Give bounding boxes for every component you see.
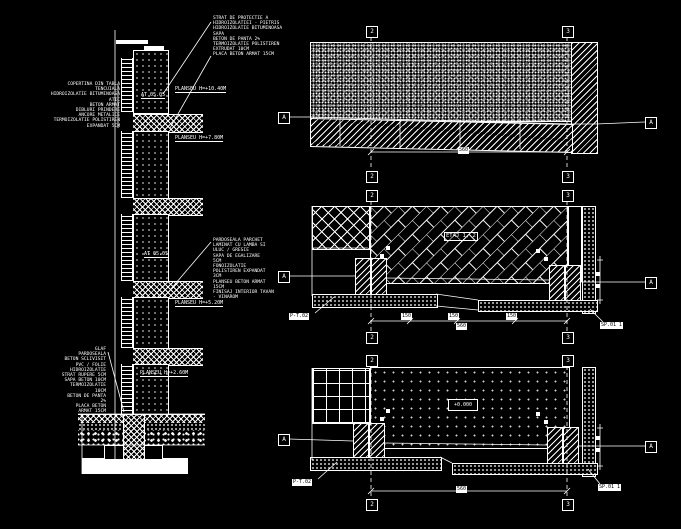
- insulation-band: [452, 463, 598, 475]
- grid-marker-2: 2: [366, 499, 378, 511]
- section-marker-a: A: [278, 434, 290, 446]
- coping-cap: [116, 40, 148, 44]
- ground-notes: GLAF PARDOSEALA BETON SCLIVISIT PVC / FO…: [0, 347, 106, 415]
- wall-insulation: [121, 297, 133, 348]
- grid-marker-2: 2: [366, 332, 378, 344]
- detail-marker: [544, 420, 548, 424]
- detail-marker: [544, 257, 548, 261]
- plan-edge-insulation: [582, 367, 596, 477]
- detail-ref-label: P-T.02: [289, 313, 309, 320]
- detail-marker: [380, 417, 384, 421]
- level-marker: +0.000: [448, 399, 478, 411]
- grid-marker-2: 2: [366, 190, 378, 202]
- wall-ref-label: AT 05.05: [144, 251, 168, 258]
- grid-marker-2: 2: [366, 171, 378, 183]
- insulation-band: [478, 300, 598, 312]
- section-marker-a: A: [645, 441, 657, 453]
- plan-edge-insulation: [582, 206, 596, 314]
- level-label: PLANSEU H=+2.60M: [140, 370, 188, 377]
- section-marker-a: A: [645, 277, 657, 289]
- detail-marker: [536, 249, 540, 253]
- pier-hatch: [565, 265, 581, 303]
- wall-insulation: [121, 364, 133, 415]
- level-label: PLANSEU H=+7.80M: [175, 135, 223, 142]
- tile-grid-field: [312, 368, 370, 424]
- detail-marker: [596, 272, 600, 276]
- insulation-band: [312, 294, 438, 308]
- grid-marker-2: 2: [366, 355, 378, 367]
- roof-edge-hatch: [571, 42, 598, 154]
- detail-ref-label: P-T.02: [292, 479, 312, 486]
- plan-title: ETAJ 1, 2: [444, 232, 478, 241]
- cad-canvas: COPERTINA DIN TABLA TENCUIALA HIDROIZOLA…: [0, 0, 681, 529]
- dimension-value: 150: [448, 313, 459, 320]
- wall-segment: [133, 297, 169, 350]
- insulation-band: [310, 457, 442, 471]
- grid-marker-3: 3: [562, 190, 574, 202]
- detail-ref-label: SP.01 1: [598, 484, 621, 491]
- wall-segment: [133, 214, 169, 283]
- wall-segment: [133, 131, 169, 200]
- grid-marker-3: 3: [562, 171, 574, 183]
- parapet-insulation: [121, 58, 133, 112]
- grid-marker-3: 3: [562, 26, 574, 38]
- grid-marker-3: 3: [562, 499, 574, 511]
- floor-notes: PARDOSEALA PARCHET LAMINAT CU LAMBA SI U…: [213, 238, 313, 300]
- detail-marker: [596, 448, 600, 452]
- dimension-total: 560: [456, 486, 467, 493]
- detail-marker: [386, 246, 390, 250]
- level-label: PLANSEU H=+5.20M: [175, 300, 223, 307]
- pier-hatch: [549, 265, 565, 303]
- detail-marker: [596, 436, 600, 440]
- grid-marker-2: 2: [366, 26, 378, 38]
- balcony-tile-hatch: [312, 206, 370, 250]
- pier-hatch: [371, 258, 387, 297]
- dimension-value: 150: [506, 313, 517, 320]
- foundation-block: [143, 445, 163, 460]
- parquet-herringbone: [370, 206, 568, 284]
- roof-notes: STRAT DE PROTECTIE A HIDROIZOLATIEI - PI…: [213, 16, 325, 58]
- wall-insulation: [121, 131, 133, 198]
- dimension-total: 560: [456, 323, 467, 330]
- pier-hatch: [563, 427, 579, 465]
- dimension-value: 150: [401, 313, 412, 320]
- grid-marker-3: 3: [562, 332, 574, 344]
- roof-gravel-field: [310, 42, 573, 122]
- detail-marker: [536, 412, 540, 416]
- detail-marker: [596, 284, 600, 288]
- section-marker-a: A: [645, 117, 657, 129]
- pier-hatch: [547, 427, 563, 465]
- wall-ref-label: AT 05.05: [141, 92, 165, 99]
- dimension-value: 560: [458, 147, 469, 154]
- roof-slope-hatch: [310, 118, 573, 153]
- wall-insulation: [121, 214, 133, 281]
- parapet-wall: [133, 50, 169, 114]
- section-marker-a: A: [278, 271, 290, 283]
- level-label: PLANSEU H=+10.40M: [175, 86, 226, 93]
- pier-hatch: [353, 423, 369, 461]
- detail-marker: [386, 409, 390, 413]
- detail-ref-label: SP.01 1: [600, 322, 623, 329]
- foundation-mass: [82, 458, 188, 474]
- foundation-block: [104, 445, 124, 460]
- grid-marker-3: 3: [562, 355, 574, 367]
- foundation-column: [123, 414, 145, 460]
- section-marker-a: A: [278, 112, 290, 124]
- pier-hatch: [369, 423, 385, 461]
- pier-hatch: [355, 258, 371, 297]
- parapet-notes: COPERTINA DIN TABLA TENCUIALA HIDROIZOLA…: [24, 82, 120, 129]
- detail-marker: [380, 254, 384, 258]
